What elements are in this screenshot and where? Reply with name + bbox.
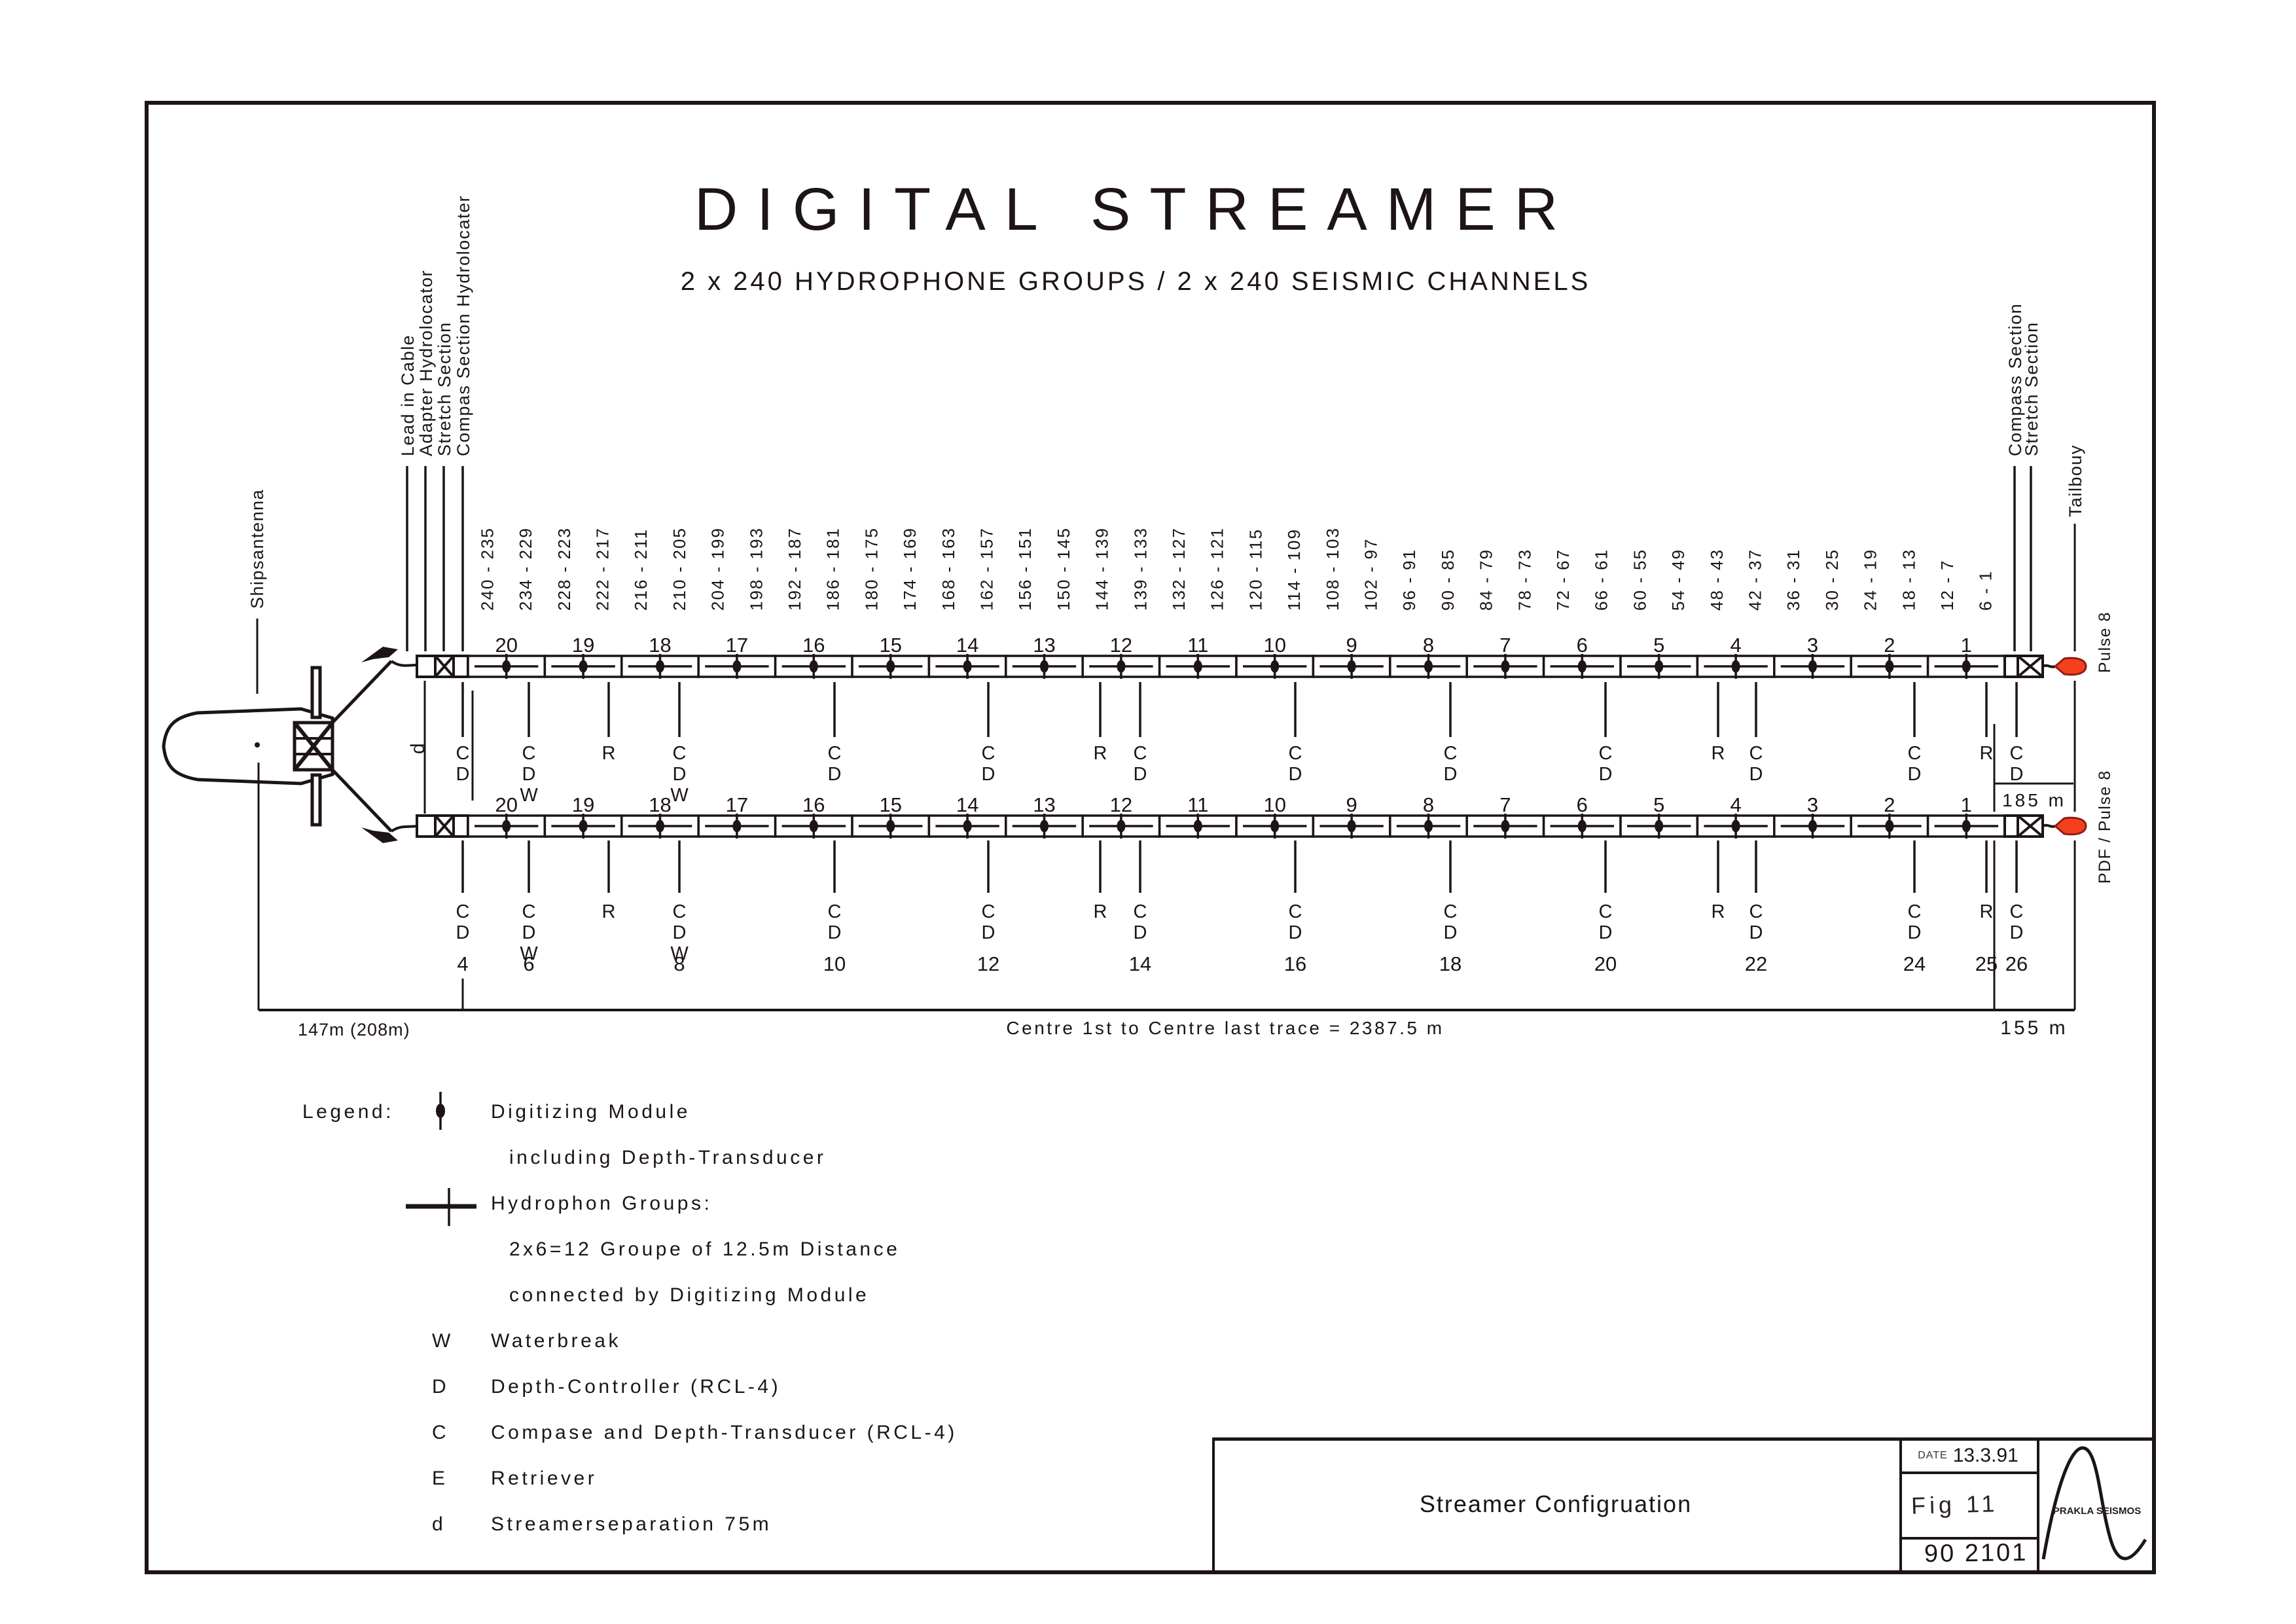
tail-box bbox=[2005, 816, 2018, 837]
digitizing-module-dot bbox=[502, 820, 511, 833]
marker-letter: C bbox=[1289, 901, 1302, 922]
digitizing-module-dot bbox=[810, 820, 818, 833]
section-number: 5 bbox=[1653, 793, 1664, 816]
head-box bbox=[417, 656, 435, 677]
title-block-row-line bbox=[1899, 1471, 2039, 1474]
marker-number: 8 bbox=[673, 952, 685, 975]
head-section-label: Stretch Section bbox=[435, 321, 454, 456]
marker-letter: D bbox=[522, 922, 536, 943]
marker-letter: C bbox=[1908, 743, 1922, 764]
legend-text: Hydrophon Groups: bbox=[491, 1193, 712, 1215]
head-box bbox=[454, 816, 468, 837]
channel-group-label: 198 - 193 bbox=[746, 527, 766, 611]
section-number: 15 bbox=[879, 634, 901, 657]
channel-group-label: 18 - 13 bbox=[1899, 549, 1918, 611]
marker-letter: W bbox=[670, 785, 689, 806]
section-number: 14 bbox=[956, 634, 978, 657]
channel-group-label: 102 - 97 bbox=[1361, 538, 1380, 611]
marker-letter: D bbox=[2010, 922, 2024, 943]
page-title: DIGITAL STREAMER bbox=[655, 175, 1617, 244]
channel-group-label: 192 - 187 bbox=[785, 527, 804, 611]
channel-group-label: 186 - 181 bbox=[823, 527, 843, 611]
section-number: 10 bbox=[1263, 634, 1285, 657]
marker-letter: C bbox=[828, 901, 842, 922]
channel-group-label: 96 - 91 bbox=[1399, 549, 1419, 611]
paravane-boom-bottom bbox=[312, 775, 320, 825]
digitizing-module-dot bbox=[1348, 660, 1356, 673]
title-block-title: Streamer Configruation bbox=[1212, 1437, 1899, 1571]
digitizing-module-dot bbox=[1885, 660, 1893, 673]
stretch-section-label: Stretch Section bbox=[2022, 321, 2041, 456]
legend-heading: Legend: bbox=[302, 1101, 394, 1123]
tailbuoy-float bbox=[2055, 818, 2086, 834]
head-section-label: Adapter Hydrolocator bbox=[416, 270, 436, 456]
marker-letter: D bbox=[1749, 922, 1763, 943]
channel-group-label: 156 - 151 bbox=[1015, 527, 1035, 611]
marker-letter: D bbox=[456, 764, 470, 785]
digitizing-module-dot bbox=[1578, 660, 1587, 673]
section-number: 16 bbox=[802, 793, 825, 816]
section-number: 11 bbox=[1187, 793, 1208, 816]
marker-number: 4 bbox=[457, 952, 468, 975]
digitizing-module-dot bbox=[1194, 820, 1202, 833]
marker-number: 18 bbox=[1439, 952, 1462, 975]
marker-number: 16 bbox=[1284, 952, 1306, 975]
marker-letter: R bbox=[1094, 901, 1107, 922]
head-section-label: Compas Section Hydrolocater bbox=[454, 195, 473, 456]
marker-number: 6 bbox=[523, 952, 534, 975]
tail-wire bbox=[2043, 825, 2055, 827]
logo-sine-curve bbox=[2043, 1448, 2145, 1559]
digitizing-module-dot bbox=[886, 820, 895, 833]
legend-text: 2x6=12 Groupe of 12.5m Distance bbox=[509, 1238, 900, 1261]
shipsantenna-label: Shipsantenna bbox=[247, 489, 267, 609]
section-number: 9 bbox=[1346, 793, 1357, 816]
marker-letter: C bbox=[522, 743, 536, 764]
dim-centre-trace: Centre 1st to Centre last trace = 2387.5… bbox=[1006, 1018, 1444, 1038]
channel-group-label: 168 - 163 bbox=[939, 527, 958, 611]
page-subtitle: 2 x 240 HYDROPHONE GROUPS / 2 x 240 SEIS… bbox=[609, 267, 1662, 297]
digitizing-module-dot bbox=[1885, 820, 1893, 833]
channel-group-label: 54 - 49 bbox=[1668, 549, 1688, 611]
title-block-divider bbox=[1899, 1437, 1902, 1572]
title-block-divider bbox=[2037, 1437, 2039, 1572]
tow-line-top bbox=[331, 661, 391, 724]
marker-letter: C bbox=[673, 901, 687, 922]
section-number: 14 bbox=[956, 793, 978, 816]
legend-symbol-letter: C bbox=[432, 1422, 449, 1444]
digitizing-module-dot bbox=[1808, 820, 1817, 833]
dim-185m: 185 m bbox=[2002, 790, 2066, 810]
section-number: 7 bbox=[1499, 793, 1511, 816]
digitizing-module-dot bbox=[732, 820, 741, 833]
marker-letter: R bbox=[1712, 743, 1725, 764]
section-number: 3 bbox=[1807, 634, 1818, 657]
marker-letter: R bbox=[1712, 901, 1725, 922]
digitizing-module-dot bbox=[1655, 660, 1663, 673]
marker-letter: D bbox=[1134, 764, 1147, 785]
section-number: 19 bbox=[572, 634, 594, 657]
tailbuoy-float bbox=[2055, 658, 2086, 674]
channel-group-label: 42 - 37 bbox=[1745, 549, 1765, 611]
marker-letter: C bbox=[673, 743, 687, 764]
digitizing-module-dot bbox=[1962, 660, 1971, 673]
section-number: 20 bbox=[495, 634, 517, 657]
marker-number: 22 bbox=[1745, 952, 1767, 975]
marker-number: 24 bbox=[1903, 952, 1926, 975]
channel-group-label: 114 - 109 bbox=[1284, 528, 1304, 611]
section-number: 13 bbox=[1033, 634, 1055, 657]
channel-group-label: 72 - 67 bbox=[1553, 549, 1573, 611]
pdf-pulse8-label: PDF / Pulse 8 bbox=[2096, 770, 2114, 884]
channel-group-label: 240 - 235 bbox=[477, 527, 497, 611]
digitizing-module-dot bbox=[1424, 820, 1433, 833]
channel-group-label: 66 - 61 bbox=[1592, 549, 1611, 611]
marker-letter: D bbox=[1599, 764, 1613, 785]
legend-text: Digitizing Module bbox=[491, 1101, 691, 1123]
marker-letter: C bbox=[1289, 743, 1302, 764]
digitizing-module-dot bbox=[963, 820, 972, 833]
marker-letter: C bbox=[1134, 901, 1147, 922]
digitizing-module-dot bbox=[1808, 660, 1817, 673]
ship-antenna-dot bbox=[255, 742, 260, 748]
marker-letter: C bbox=[2010, 901, 2024, 922]
legend-text: including Depth-Transducer bbox=[509, 1147, 826, 1169]
section-number: 15 bbox=[879, 793, 901, 816]
marker-number: 10 bbox=[823, 952, 846, 975]
section-number: 10 bbox=[1263, 793, 1285, 816]
channel-group-label: 180 - 175 bbox=[861, 527, 881, 611]
channel-group-label: 210 - 205 bbox=[670, 527, 689, 611]
section-number: 17 bbox=[726, 793, 748, 816]
title-block-fig: Fig 11 bbox=[1910, 1490, 1998, 1519]
digitizing-module-dot bbox=[579, 660, 588, 673]
digitizing-module-dot bbox=[1501, 660, 1509, 673]
marker-letter: D bbox=[982, 922, 996, 943]
legend-text: Waterbreak bbox=[491, 1330, 621, 1352]
digitizing-module-dot bbox=[1578, 820, 1587, 833]
section-number: 19 bbox=[572, 793, 594, 816]
digitizing-module-dot bbox=[1040, 660, 1049, 673]
section-number: 18 bbox=[649, 793, 671, 816]
marker-letter: D bbox=[522, 764, 536, 785]
ship-group bbox=[164, 647, 417, 843]
digitizing-module-dot bbox=[1040, 820, 1049, 833]
section-number: 17 bbox=[726, 634, 748, 657]
channel-group-label: 78 - 73 bbox=[1515, 549, 1534, 611]
channel-group-label: 24 - 19 bbox=[1861, 549, 1880, 611]
channel-group-label: 36 - 31 bbox=[1784, 549, 1803, 611]
digitizing-module-dot bbox=[1117, 660, 1125, 673]
marker-letter: R bbox=[1980, 743, 1994, 764]
date-label: DATE bbox=[1918, 1450, 1947, 1462]
marker-letter: C bbox=[522, 901, 536, 922]
section-number: 1 bbox=[1961, 634, 1972, 657]
section-number: 11 bbox=[1187, 634, 1208, 657]
legend-symbol-letter: W bbox=[432, 1330, 454, 1352]
channel-group-label: 144 - 139 bbox=[1092, 527, 1112, 611]
legend-symbol-letter: d bbox=[432, 1513, 446, 1536]
channel-group-label: 132 - 127 bbox=[1169, 527, 1189, 611]
section-number: 6 bbox=[1577, 793, 1588, 816]
marker-letter: D bbox=[1908, 764, 1922, 785]
section-number: 16 bbox=[802, 634, 825, 657]
marker-letter: C bbox=[1599, 743, 1613, 764]
marker-letter: D bbox=[2010, 764, 2024, 785]
channel-group-label: 60 - 55 bbox=[1630, 549, 1649, 611]
marker-letter: D bbox=[1134, 922, 1147, 943]
streamer-1: 2019181716151413121110987654321 bbox=[417, 634, 2086, 679]
section-number: 5 bbox=[1653, 634, 1664, 657]
channel-group-label: 174 - 169 bbox=[900, 527, 920, 611]
lead-wire-bottom bbox=[391, 826, 417, 831]
head-section-label: Lead in Cable bbox=[398, 334, 418, 456]
digitizing-module-dot bbox=[1270, 820, 1279, 833]
channel-group-label: 48 - 43 bbox=[1707, 549, 1727, 611]
marker-letter: C bbox=[982, 743, 996, 764]
marker-letter: C bbox=[1444, 901, 1458, 922]
digitizing-module-dot bbox=[732, 660, 741, 673]
channel-group-label: 162 - 157 bbox=[977, 527, 996, 611]
section-number: 7 bbox=[1499, 634, 1511, 657]
digitizing-module-dot bbox=[656, 820, 664, 833]
head-box bbox=[454, 656, 468, 677]
company-logo-text: PRAKLA SEISMOS bbox=[2039, 1506, 2155, 1517]
marker-letter: C bbox=[1749, 901, 1763, 922]
marker-letter: C bbox=[1444, 743, 1458, 764]
channel-group-label: 6 - 1 bbox=[1976, 570, 1996, 611]
separation-label: d bbox=[407, 742, 429, 754]
marker-letter: C bbox=[828, 743, 842, 764]
title-block-number: 90 2101 bbox=[1924, 1539, 2028, 1568]
marker-letter: D bbox=[1908, 922, 1922, 943]
digitizing-module-dot bbox=[1424, 660, 1433, 673]
marker-letter: C bbox=[1749, 743, 1763, 764]
tail-box bbox=[2005, 656, 2018, 677]
date-value: 13.3.91 bbox=[1953, 1445, 2018, 1467]
marker-letter: C bbox=[982, 901, 996, 922]
marker-letter: D bbox=[673, 764, 687, 785]
marker-letter: D bbox=[1289, 922, 1302, 943]
marker-letter: C bbox=[456, 901, 470, 922]
legend-module-dot bbox=[436, 1104, 445, 1118]
marker-letter: C bbox=[1134, 743, 1147, 764]
marker-letter: C bbox=[2010, 743, 2024, 764]
dim-155m: 155 m bbox=[2000, 1017, 2068, 1039]
marker-letter: R bbox=[1094, 743, 1107, 764]
section-number: 2 bbox=[1884, 634, 1895, 657]
channel-group-label: 126 - 121 bbox=[1208, 527, 1227, 611]
channel-group-label: 222 - 217 bbox=[592, 527, 612, 611]
digitizing-module-dot bbox=[502, 660, 511, 673]
channel-group-label: 90 - 85 bbox=[1438, 549, 1458, 611]
section-number: 2 bbox=[1884, 793, 1895, 816]
marker-letter: D bbox=[1444, 764, 1458, 785]
tailbouy-label: Tailbouy bbox=[2066, 444, 2085, 517]
legend-text: connected by Digitizing Module bbox=[509, 1284, 869, 1307]
marker-number: 12 bbox=[977, 952, 999, 975]
marker-letter: D bbox=[982, 764, 996, 785]
channel-group-label: 228 - 223 bbox=[554, 527, 574, 611]
marker-letter: D bbox=[1444, 922, 1458, 943]
marker-letter: D bbox=[456, 922, 470, 943]
title-block-date: DATE 13.3.91 bbox=[1899, 1440, 2037, 1471]
title-block-left bbox=[1212, 1437, 1215, 1572]
channel-group-label: 120 - 115 bbox=[1246, 528, 1265, 611]
digitizing-module-dot bbox=[1655, 820, 1663, 833]
channel-group-label: 234 - 229 bbox=[516, 527, 535, 611]
digitizing-module-dot bbox=[1270, 660, 1279, 673]
channel-group-label: 204 - 199 bbox=[708, 527, 728, 611]
channel-group-label: 216 - 211 bbox=[631, 528, 651, 611]
marker-letter: R bbox=[602, 901, 616, 922]
digitizing-module-dot bbox=[810, 660, 818, 673]
marker-letter: C bbox=[456, 743, 470, 764]
section-number: 12 bbox=[1110, 634, 1132, 657]
section-number: 4 bbox=[1730, 634, 1741, 657]
streamer-2: 2019181716151413121110987654321 bbox=[417, 793, 2086, 839]
legend-text: Retriever bbox=[491, 1468, 597, 1490]
marker-number: 26 bbox=[2005, 952, 2028, 975]
legend-symbol-letter: D bbox=[432, 1376, 449, 1398]
company-logo-wave bbox=[2043, 1448, 2145, 1559]
section-number: 3 bbox=[1807, 793, 1818, 816]
marker-letter: R bbox=[602, 743, 616, 764]
paravane-boom-top bbox=[312, 668, 320, 717]
channel-group-label: 139 - 133 bbox=[1130, 527, 1150, 611]
tail-wire bbox=[2043, 666, 2055, 667]
pulse8-label: Pulse 8 bbox=[2096, 611, 2114, 673]
digitizing-module-dot bbox=[963, 660, 972, 673]
tow-line-bottom bbox=[331, 768, 391, 831]
legend-text: Compase and Depth-Transducer (RCL-4) bbox=[491, 1422, 958, 1444]
marker-letter: C bbox=[1599, 901, 1613, 922]
channel-group-label: 108 - 103 bbox=[1323, 527, 1342, 611]
marker-letter: W bbox=[520, 785, 538, 806]
marker-number: 20 bbox=[1594, 952, 1617, 975]
paravane-door-top bbox=[361, 647, 398, 662]
channel-group-label: 150 - 145 bbox=[1054, 527, 1073, 611]
section-number: 8 bbox=[1423, 634, 1434, 657]
legend-text: Streamerseparation 75m bbox=[491, 1513, 772, 1536]
marker-letter: D bbox=[828, 764, 842, 785]
digitizing-module-dot bbox=[1501, 820, 1509, 833]
marker-letter: D bbox=[1289, 764, 1302, 785]
digitizing-module-dot bbox=[886, 660, 895, 673]
channel-group-label: 30 - 25 bbox=[1822, 549, 1842, 611]
digitizing-module-dot bbox=[1348, 820, 1356, 833]
marker-number: 14 bbox=[1129, 952, 1151, 975]
legend-symbol-letter: E bbox=[432, 1468, 448, 1490]
section-number: 4 bbox=[1730, 793, 1741, 816]
marker-letter: D bbox=[1749, 764, 1763, 785]
marker-letter: D bbox=[673, 922, 687, 943]
section-number: 1 bbox=[1961, 793, 1972, 816]
channel-group-label: 12 - 7 bbox=[1937, 560, 1957, 611]
digitizing-module-dot bbox=[1194, 660, 1202, 673]
digitizing-module-dot bbox=[1962, 820, 1971, 833]
dim-147m: 147m (208m) bbox=[298, 1020, 410, 1039]
section-number: 13 bbox=[1033, 793, 1055, 816]
channel-group-label: 84 - 79 bbox=[1477, 549, 1496, 611]
digitizing-module-dot bbox=[1732, 660, 1740, 673]
section-number: 20 bbox=[495, 793, 517, 816]
marker-letter: R bbox=[1980, 901, 1994, 922]
marker-letter: C bbox=[1908, 901, 1922, 922]
scanned-drawing-page: ShipsantennaLead in CableAdapter Hydrolo… bbox=[0, 0, 2296, 1624]
section-number: 6 bbox=[1577, 634, 1588, 657]
head-box bbox=[417, 816, 435, 837]
digitizing-module-dot bbox=[656, 660, 664, 673]
marker-letter: D bbox=[828, 922, 842, 943]
marker-letter: D bbox=[1599, 922, 1613, 943]
digitizing-module-dot bbox=[579, 820, 588, 833]
lead-wire-top bbox=[391, 661, 417, 666]
digitizing-module-dot bbox=[1117, 820, 1125, 833]
digitizing-module-dot bbox=[1732, 820, 1740, 833]
legend-text: Depth-Controller (RCL-4) bbox=[491, 1376, 781, 1398]
title-block-top bbox=[1212, 1437, 2154, 1441]
title-block-row-line bbox=[1899, 1537, 2039, 1540]
section-number: 18 bbox=[649, 634, 671, 657]
section-number: 12 bbox=[1110, 793, 1132, 816]
channel-group-labels: 240 - 235234 - 229228 - 223222 - 217216 … bbox=[477, 527, 1995, 611]
section-number: 8 bbox=[1423, 793, 1434, 816]
section-number: 9 bbox=[1346, 634, 1357, 657]
